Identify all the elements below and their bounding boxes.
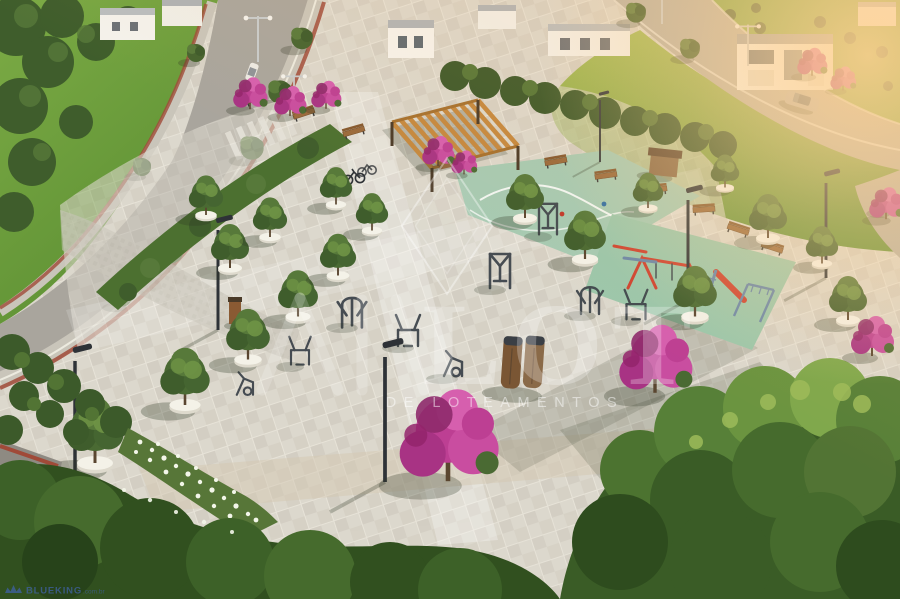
credit-name: BLUEKING	[26, 586, 82, 597]
watermark-tagline: DE LOTEAMENTOS	[386, 395, 624, 411]
watermark-large-text: LOT	[422, 279, 701, 410]
credit-domain: .com.br	[83, 589, 106, 596]
render-canvas: LOT DE LOTEAMENTOS BLUEKING .com.br	[0, 0, 900, 599]
park-aerial-render: LOT DE LOTEAMENTOS BLUEKING .com.br	[0, 0, 900, 599]
